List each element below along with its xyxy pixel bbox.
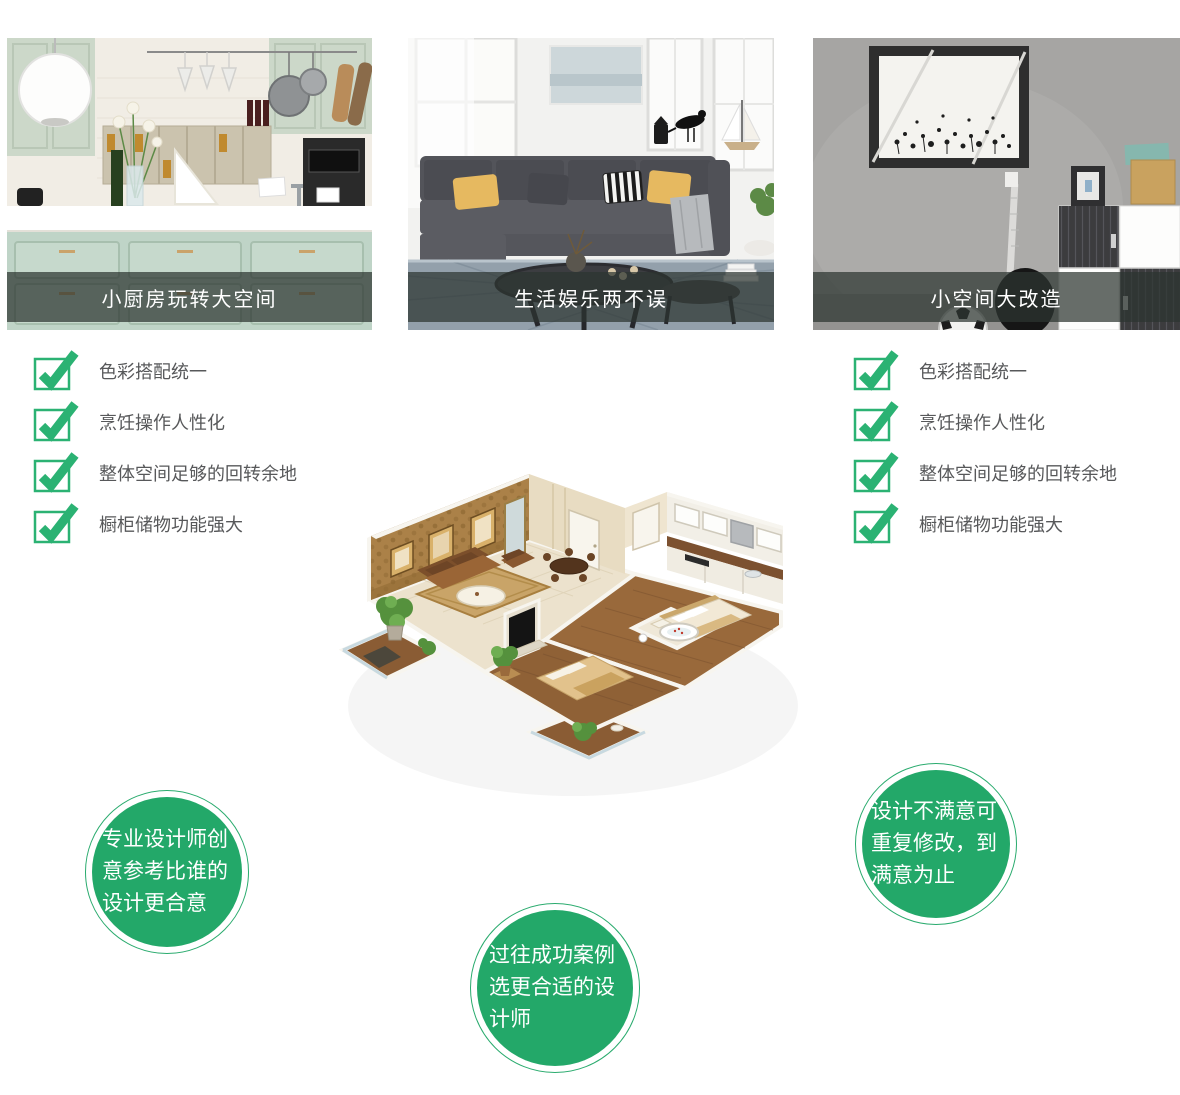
case-card-small-space[interactable]: 小空间大改造 xyxy=(813,38,1180,330)
checklist-item: 橱柜储物功能强大 xyxy=(853,502,1063,546)
checklist-item-label: 整体空间足够的回转余地 xyxy=(919,460,1117,486)
card-caption: 小厨房玩转大空间 xyxy=(7,272,372,322)
benefit-bubble-revisions: 设计不满意可重复修改，到满意为止 xyxy=(855,763,1017,925)
bubble-circle: 设计不满意可重复修改，到满意为止 xyxy=(862,770,1010,918)
bubble-text: 过往成功案例选更合适的设计师 xyxy=(489,940,621,1036)
check-icon xyxy=(33,349,79,393)
bubble-text: 设计不满意可重复修改，到满意为止 xyxy=(871,796,1001,892)
page: 小厨房玩转大空间 xyxy=(0,0,1180,1095)
check-icon xyxy=(33,451,79,495)
card-caption: 生活娱乐两不误 xyxy=(408,272,774,322)
case-card-kitchen[interactable]: 小厨房玩转大空间 xyxy=(7,38,372,330)
bubble-circle: 过往成功案例选更合适的设计师 xyxy=(477,910,633,1066)
benefit-bubble-cases: 过往成功案例选更合适的设计师 xyxy=(470,903,640,1073)
bubble-circle: 专业设计师创意参考比谁的设计更合意 xyxy=(92,797,242,947)
checklist-item-label: 整体空间足够的回转余地 xyxy=(99,460,297,486)
checklist-item-label: 色彩搭配统一 xyxy=(99,358,207,384)
check-icon xyxy=(853,451,899,495)
checklist-item-label: 烹饪操作人性化 xyxy=(99,409,225,435)
checklist-item: 橱柜储物功能强大 xyxy=(33,502,243,546)
checklist-item: 烹饪操作人性化 xyxy=(853,400,1045,444)
check-icon xyxy=(33,502,79,546)
floorplan-3d-image xyxy=(333,466,807,832)
checklist-item: 烹饪操作人性化 xyxy=(33,400,225,444)
card-caption: 小空间大改造 xyxy=(813,272,1180,322)
check-icon xyxy=(853,502,899,546)
checklist-item-label: 橱柜储物功能强大 xyxy=(919,511,1063,537)
checklist-item-label: 烹饪操作人性化 xyxy=(919,409,1045,435)
checklist-item: 色彩搭配统一 xyxy=(33,349,207,393)
checklist-item: 整体空间足够的回转余地 xyxy=(853,451,1117,495)
check-icon xyxy=(853,349,899,393)
checklist-item-label: 色彩搭配统一 xyxy=(919,358,1027,384)
checklist-item-label: 橱柜储物功能强大 xyxy=(99,511,243,537)
check-icon xyxy=(33,400,79,444)
check-icon xyxy=(853,400,899,444)
case-card-living-room[interactable]: 生活娱乐两不误 xyxy=(408,38,774,330)
benefit-bubble-designers: 专业设计师创意参考比谁的设计更合意 xyxy=(85,790,249,954)
floorplan-3d-illustration xyxy=(333,466,807,832)
bubble-text: 专业设计师创意参考比谁的设计更合意 xyxy=(102,824,232,920)
checklist-item: 整体空间足够的回转余地 xyxy=(33,451,297,495)
checklist-item: 色彩搭配统一 xyxy=(853,349,1027,393)
